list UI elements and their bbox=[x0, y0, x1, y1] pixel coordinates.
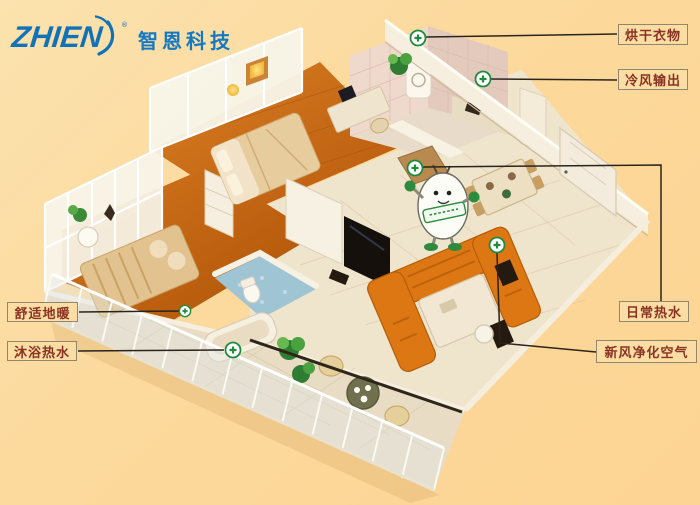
registered-mark: ® bbox=[121, 21, 128, 29]
callout-label-cold-air: 冷风输出 bbox=[618, 69, 688, 90]
floor-lamp-glow-1 bbox=[227, 84, 239, 96]
marker-bath-hot-water-icon bbox=[226, 343, 241, 358]
mascot-glove-left bbox=[405, 181, 416, 192]
round-side-table bbox=[78, 227, 98, 247]
mascot-shoe-left bbox=[424, 243, 438, 251]
brand-logo: ZHIEN ® 智恩科技 bbox=[12, 16, 234, 60]
marker-cold-air-icon bbox=[476, 72, 491, 87]
floorplan-illustration bbox=[0, 0, 700, 505]
callout-label-bath-hot-water: 沐浴热水 bbox=[7, 341, 77, 361]
line-floor-heating bbox=[79, 311, 180, 312]
brand-wordmark: ZHIEN bbox=[10, 21, 104, 55]
line-bath-hot-water bbox=[78, 350, 224, 351]
callout-label-floor-heating: 舒适地暖 bbox=[7, 302, 78, 322]
callout-label-fresh-air: 新风净化空气 bbox=[596, 340, 697, 363]
line-cold-air bbox=[491, 79, 617, 80]
callout-label-drying: 烘干衣物 bbox=[618, 24, 688, 45]
marker-daily-hot-water-icon bbox=[408, 161, 423, 176]
door-knob bbox=[564, 170, 567, 173]
marker-floor-heating-icon bbox=[179, 305, 190, 316]
mascot-eye-left bbox=[434, 191, 439, 196]
mascot-glove-right bbox=[469, 192, 480, 203]
mascot-shoe-right bbox=[448, 243, 462, 251]
marker-drying-icon bbox=[411, 31, 426, 46]
marker-fresh-air-icon bbox=[490, 238, 505, 253]
brand-company-name: 智恩科技 bbox=[138, 25, 234, 54]
sphere-lamp bbox=[475, 325, 493, 343]
callout-label-daily-hot-water: 日常热水 bbox=[619, 301, 689, 322]
mascot-eye-right bbox=[447, 191, 452, 196]
